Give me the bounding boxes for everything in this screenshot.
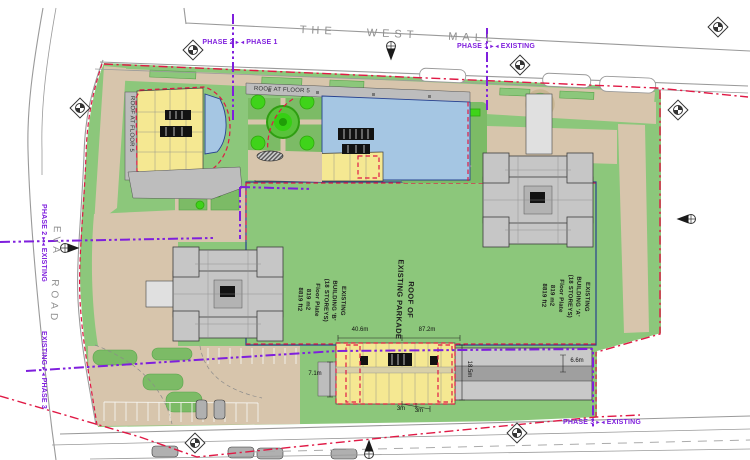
car	[214, 400, 225, 419]
building-a-footprint	[483, 153, 593, 247]
site-plan-canvas: THE WEST MALL EVA ROAD PHASE 2▸◂PHASE 1 …	[0, 0, 750, 460]
phase-divider-icon: ▸	[596, 420, 599, 426]
survey-marker-icon	[507, 423, 527, 443]
phase-divider-icon: ◂	[40, 372, 46, 375]
roof-west-label: ROOF AT FLOOR 5	[127, 96, 135, 152]
phase-boundary-label-west-upper: PHASE 2▸◂EXISTING	[39, 197, 47, 289]
survey-marker-icon	[185, 433, 205, 453]
phase-divider-icon: ◂	[602, 420, 605, 426]
survey-pin-icon	[365, 440, 374, 459]
dim-3m-a: 3m	[394, 406, 408, 413]
phase-divider-icon: ▸	[236, 40, 239, 46]
phase-divider-icon: ◂	[241, 40, 244, 46]
survey-marker-icon	[708, 17, 728, 37]
phase-divider-icon: ▸	[490, 44, 493, 50]
survey-pin-icon	[677, 215, 696, 224]
dim-87-2m: 87.2m	[405, 327, 449, 334]
phase-divider-icon: ▸	[40, 367, 46, 370]
dim-18-5m: 18.5m	[465, 356, 472, 382]
survey-pin-icon	[387, 42, 396, 61]
phase-divider-icon: ◂	[496, 44, 499, 50]
phase-divider-icon: ▸	[40, 237, 46, 240]
dim-7-1m: 7.1m	[302, 371, 328, 378]
survey-marker-icon	[668, 100, 688, 120]
site-plan-drawing	[0, 0, 750, 460]
road-cars	[152, 446, 357, 459]
survey-pin-icon	[61, 244, 80, 253]
phase-boundary-label-top-east: PHASE 1▸◂EXISTING	[446, 43, 546, 51]
courtyard-planter	[248, 95, 322, 152]
phase-boundary-label-bottom-east: PHASE 3▸◂EXISTING	[554, 419, 650, 427]
survey-marker-icon	[70, 98, 90, 118]
phase-divider-icon: ◂	[40, 243, 46, 246]
vent-hatch	[257, 151, 283, 161]
dim-6-6m: 6.6m	[565, 358, 589, 365]
tower-a-walkway	[526, 94, 552, 154]
dim-40-6m: 40.6m	[340, 327, 380, 334]
phase-boundary-label-top-west: PHASE 2▸◂PHASE 1	[194, 39, 286, 47]
dim-3m-b: 3m	[412, 408, 426, 415]
parkade-label: ROOF OF EXISTING PARKADE	[392, 247, 418, 352]
survey-marker-icon	[510, 55, 530, 75]
building-a-label: EXISTING BUILDING 'A' (18 STOREYS) Floor…	[537, 254, 592, 338]
phase-boundary-label-west-lower: EXISTING▸◂PHASE 3	[39, 324, 47, 416]
building-b-footprint	[173, 247, 283, 341]
car	[196, 400, 207, 419]
